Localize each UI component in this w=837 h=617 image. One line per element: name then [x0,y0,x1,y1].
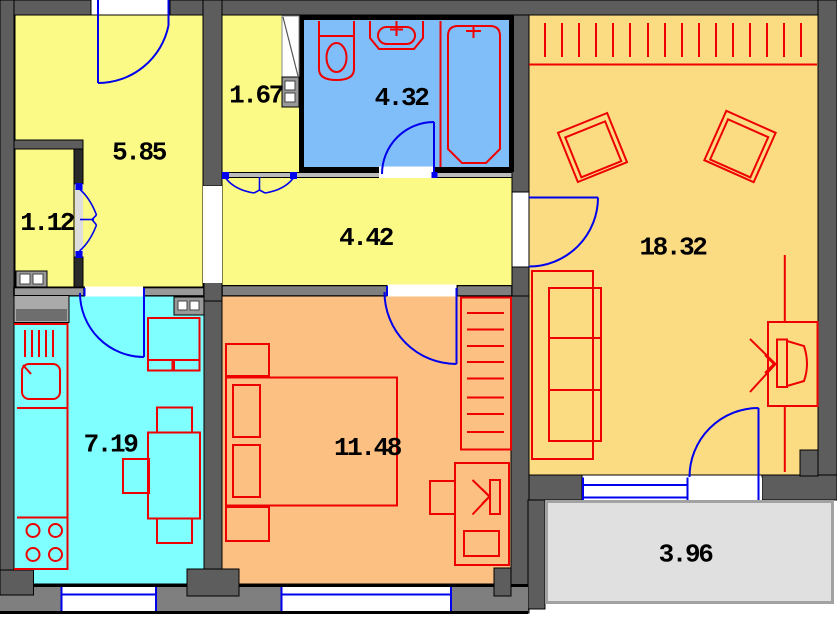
svg-text:18.32: 18.32 [639,233,707,263]
svg-text:3.96: 3.96 [659,540,714,570]
svg-text:11.48: 11.48 [334,433,402,463]
svg-text:1.12: 1.12 [20,208,75,238]
svg-text:4.32: 4.32 [375,83,430,113]
svg-text:1.67: 1.67 [229,81,283,111]
svg-text:4.42: 4.42 [339,223,394,253]
svg-text:5.85: 5.85 [112,138,167,168]
svg-text:7.19: 7.19 [84,430,139,460]
